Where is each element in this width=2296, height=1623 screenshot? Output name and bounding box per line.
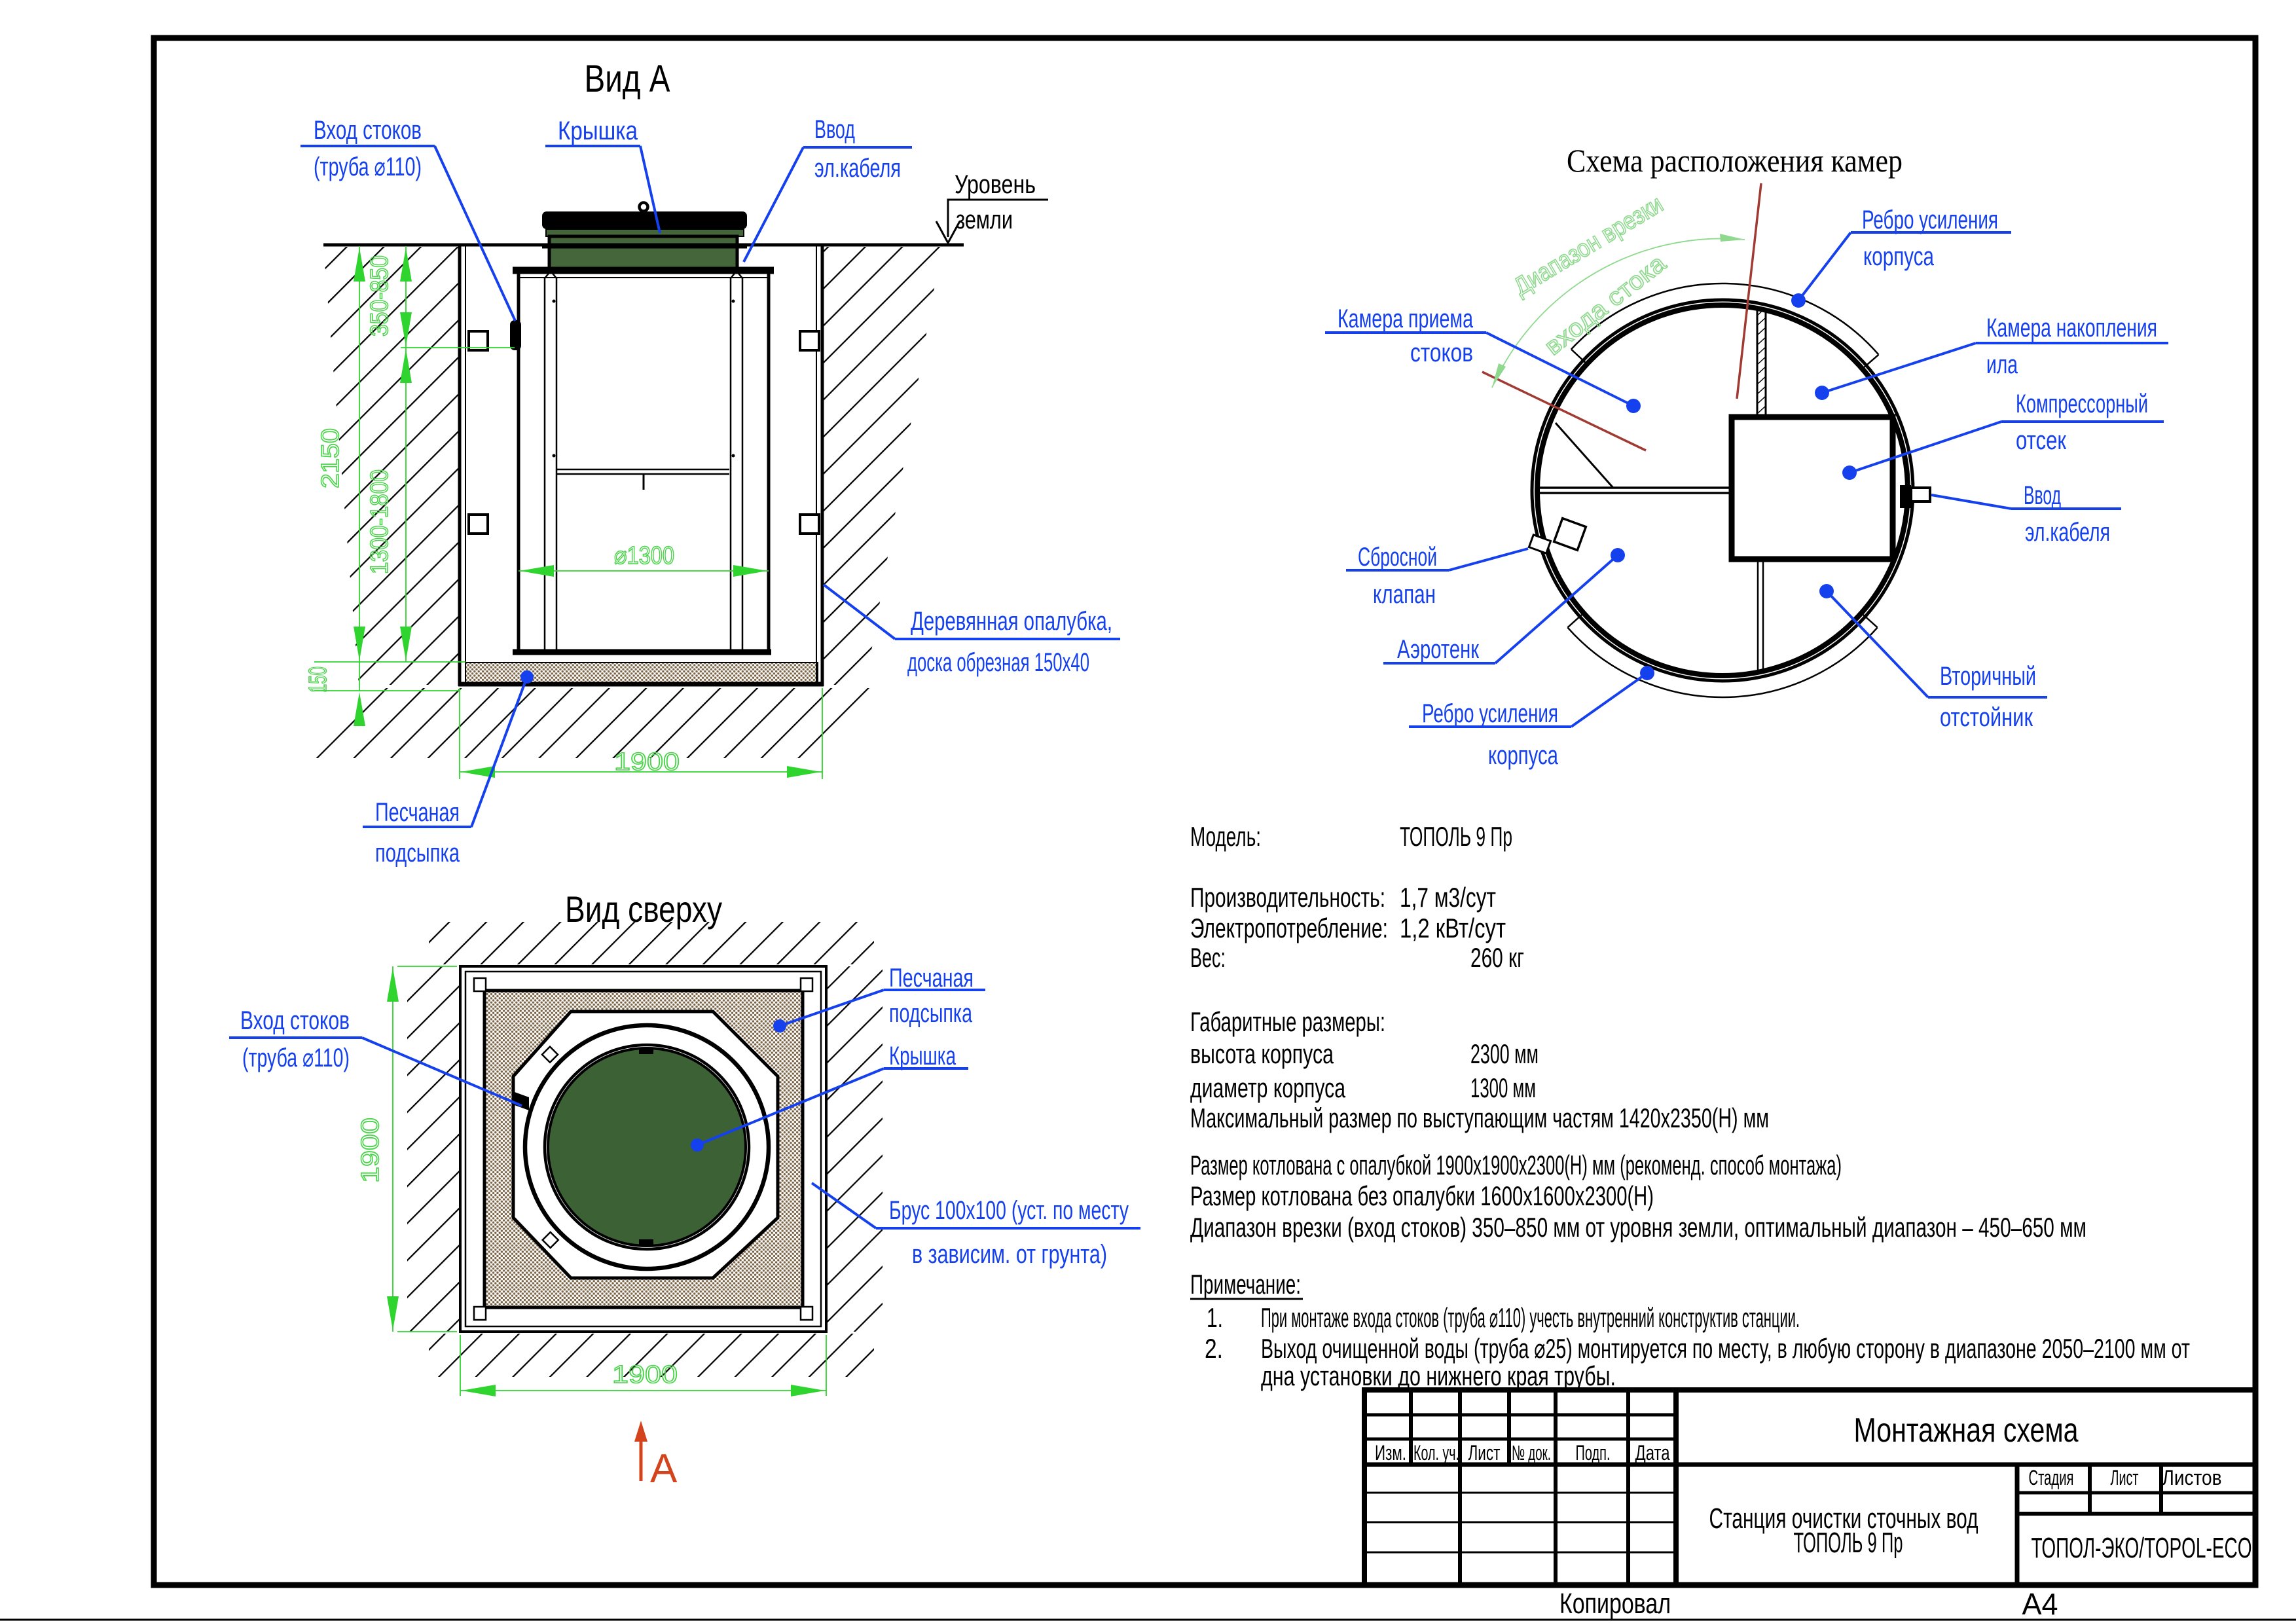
svg-text:1300 мм: 1300 мм xyxy=(1470,1072,1536,1103)
svg-text:150: 150 xyxy=(304,666,332,693)
svg-text:При монтаже входа стоков (тру: При монтаже входа стоков (труба ⌀110) уч… xyxy=(1261,1302,1800,1333)
svg-text:Компрессорный: Компрессорный xyxy=(2016,390,2148,418)
svg-text:ТОПОЛЬ 9 Пр: ТОПОЛЬ 9 Пр xyxy=(1794,1527,1903,1559)
svg-text:земли: земли xyxy=(956,206,1013,234)
svg-text:Диапазон врезки (вход стоков): Диапазон врезки (вход стоков) 350–850 мм… xyxy=(1190,1212,2086,1243)
svg-text:Дата: Дата xyxy=(1635,1441,1670,1465)
svg-text:эл.кабеля: эл.кабеля xyxy=(814,154,901,183)
svg-text:Листов: Листов xyxy=(2162,1466,2222,1489)
svg-text:Примечание:: Примечание: xyxy=(1190,1269,1301,1300)
svg-text:Вход стоков: Вход стоков xyxy=(240,1006,350,1035)
svg-text:Крышка: Крышка xyxy=(889,1042,957,1070)
svg-text:Аэротенк: Аэротенк xyxy=(1397,635,1479,664)
svg-text:Копировал: Копировал xyxy=(1559,1588,1671,1620)
svg-text:Выход очищенной воды (труба ⌀2: Выход очищенной воды (труба ⌀25) монтиру… xyxy=(1261,1333,2190,1364)
svg-text:Брус 100х100 (уст. по месту: Брус 100х100 (уст. по месту xyxy=(889,1196,1129,1225)
svg-text:Крышка: Крышка xyxy=(558,117,638,145)
svg-text:Габаритные размеры:: Габаритные размеры: xyxy=(1190,1006,1385,1037)
svg-text:в зависим. от грунта): в зависим. от грунта) xyxy=(912,1240,1107,1269)
svg-text:1900: 1900 xyxy=(614,748,680,776)
svg-text:Размер котлована с опалубкой 1: Размер котлована с опалубкой 1900х1900х2… xyxy=(1190,1150,1842,1180)
svg-text:Ввод: Ввод xyxy=(814,115,855,144)
svg-text:Камера приема: Камера приема xyxy=(1338,304,1474,333)
svg-text:Вторичный: Вторичный xyxy=(1940,662,2036,691)
svg-text:отсек: отсек xyxy=(2016,426,2066,455)
svg-text:Сбросной: Сбросной xyxy=(1358,543,1437,572)
svg-text:1900: 1900 xyxy=(612,1361,678,1389)
svg-text:⌀1300: ⌀1300 xyxy=(614,542,674,570)
svg-text:высота корпуса: высота корпуса xyxy=(1190,1038,1334,1069)
svg-text:Ребро усиления: Ребро усиления xyxy=(1422,699,1558,728)
svg-text:Уровень: Уровень xyxy=(955,170,1036,199)
svg-text:Песчаная: Песчаная xyxy=(375,798,460,827)
svg-text:Лист: Лист xyxy=(1468,1441,1501,1465)
svg-text:2150: 2150 xyxy=(317,428,344,488)
svg-text:эл.кабеля: эл.кабеля xyxy=(2025,518,2110,547)
svg-text:ила: ила xyxy=(1986,350,2018,379)
svg-text:2300 мм: 2300 мм xyxy=(1470,1038,1539,1069)
svg-text:(труба ⌀110): (труба ⌀110) xyxy=(314,153,422,181)
svg-text:Камера накопления: Камера накопления xyxy=(1986,314,2157,342)
svg-text:Кол. уч.: Кол. уч. xyxy=(1413,1441,1459,1465)
svg-text:Изм.: Изм. xyxy=(1375,1441,1406,1465)
svg-text:260 кг: 260 кг xyxy=(1470,942,1524,973)
svg-text:1900: 1900 xyxy=(357,1118,384,1183)
svg-text:Производительность:: Производительность: xyxy=(1190,882,1385,913)
svg-text:1300-1800: 1300-1800 xyxy=(366,469,393,574)
svg-text:Ввод: Ввод xyxy=(2024,481,2061,510)
svg-text:2.: 2. xyxy=(1205,1333,1223,1364)
svg-text:ТОПОЛ-ЭКО/TOPOL-ECO: ТОПОЛ-ЭКО/TOPOL-ECO xyxy=(2032,1532,2252,1564)
svg-text:диаметр корпуса: диаметр корпуса xyxy=(1190,1072,1345,1103)
svg-text:Модель:: Модель: xyxy=(1190,821,1261,852)
svg-text:клапан: клапан xyxy=(1373,580,1436,609)
svg-text:подсыпка: подсыпка xyxy=(375,839,460,867)
svg-text:Лист: Лист xyxy=(2111,1466,2139,1489)
svg-text:Вид А: Вид А xyxy=(585,58,670,100)
svg-text:№ док.: № док. xyxy=(1512,1441,1551,1465)
svg-text:1,2 кВт/сут: 1,2 кВт/сут xyxy=(1400,913,1506,943)
svg-text:доска обрезная 150х40: доска обрезная 150х40 xyxy=(907,648,1089,677)
svg-text:Песчаная: Песчаная xyxy=(889,964,974,993)
svg-text:Ребро усиления: Ребро усиления xyxy=(1862,206,1998,234)
svg-text:Монтажная схема: Монтажная схема xyxy=(1854,1412,2079,1450)
svg-text:Деревянная опалубка,: Деревянная опалубка, xyxy=(911,607,1112,636)
svg-text:корпуса: корпуса xyxy=(1863,242,1935,271)
svg-text:Максимальный размер по выступа: Максимальный размер по выступающим частя… xyxy=(1190,1103,1769,1133)
svg-text:1,7 м3/сут: 1,7 м3/сут xyxy=(1400,882,1496,913)
svg-text:1.: 1. xyxy=(1207,1302,1223,1333)
svg-text:Вес:: Вес: xyxy=(1190,942,1226,973)
svg-text:Стадия: Стадия xyxy=(2029,1466,2074,1489)
svg-text:подсыпка: подсыпка xyxy=(889,999,973,1028)
svg-text:Электропотребление:: Электропотребление: xyxy=(1190,913,1388,943)
svg-text:Размер котлована без опалубки: Размер котлована без опалубки 1600х1600х… xyxy=(1190,1180,1654,1211)
svg-text:ТОПОЛЬ 9 Пр: ТОПОЛЬ 9 Пр xyxy=(1400,821,1512,852)
svg-text:стоков: стоков xyxy=(1410,338,1473,367)
svg-text:Схема расположения камер: Схема расположения камер xyxy=(1567,142,1903,179)
svg-text:отстойник: отстойник xyxy=(1940,703,2033,732)
svg-text:корпуса: корпуса xyxy=(1488,741,1559,770)
svg-text:Подп.: Подп. xyxy=(1576,1441,1611,1465)
svg-text:А: А xyxy=(650,1446,678,1491)
svg-text:350-850: 350-850 xyxy=(366,255,393,337)
svg-text:Вход стоков: Вход стоков xyxy=(314,116,422,145)
svg-text:(труба ⌀110): (труба ⌀110) xyxy=(242,1044,350,1072)
svg-text:А4: А4 xyxy=(2022,1587,2058,1621)
svg-text:дна установки до нижнего края: дна установки до нижнего края трубы. xyxy=(1261,1360,1616,1391)
